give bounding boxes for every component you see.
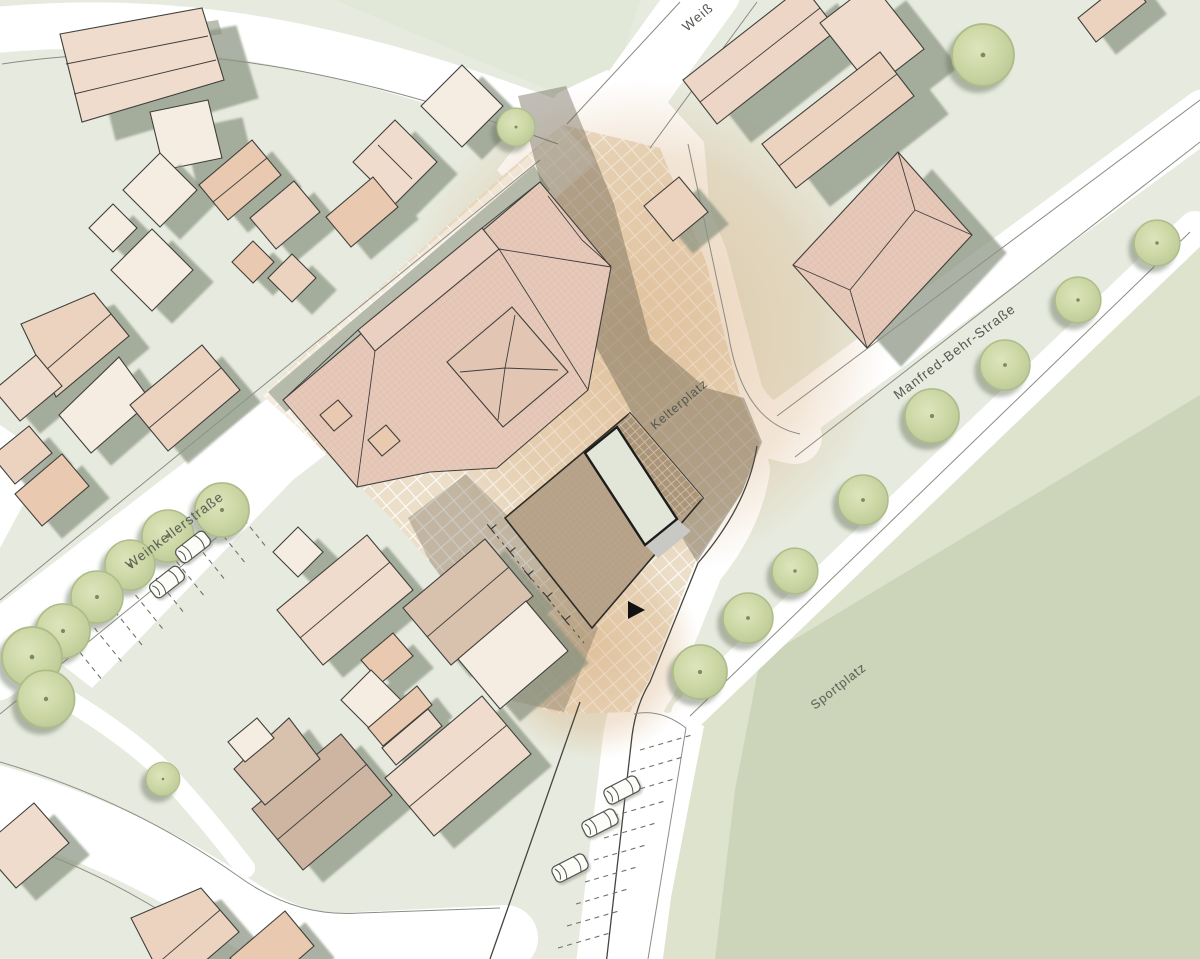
tree-symbol bbox=[952, 24, 1014, 86]
tree-symbol bbox=[723, 593, 773, 643]
tree-symbol bbox=[146, 762, 180, 796]
tree-symbol bbox=[905, 389, 959, 443]
tree-symbol bbox=[772, 548, 818, 594]
tree-symbol bbox=[1055, 277, 1101, 323]
tree-symbol bbox=[1134, 220, 1180, 266]
site-plan-canvas: Weinkellerstraße Manfred-Behr-Straße Wei… bbox=[0, 0, 1200, 959]
site-plan-map: Weinkellerstraße Manfred-Behr-Straße Wei… bbox=[0, 0, 1200, 959]
tree-symbol bbox=[17, 670, 74, 727]
tree-symbol bbox=[673, 645, 727, 699]
tree-symbol bbox=[980, 340, 1030, 390]
tree-symbol bbox=[838, 475, 888, 525]
tree-symbol bbox=[497, 108, 535, 146]
